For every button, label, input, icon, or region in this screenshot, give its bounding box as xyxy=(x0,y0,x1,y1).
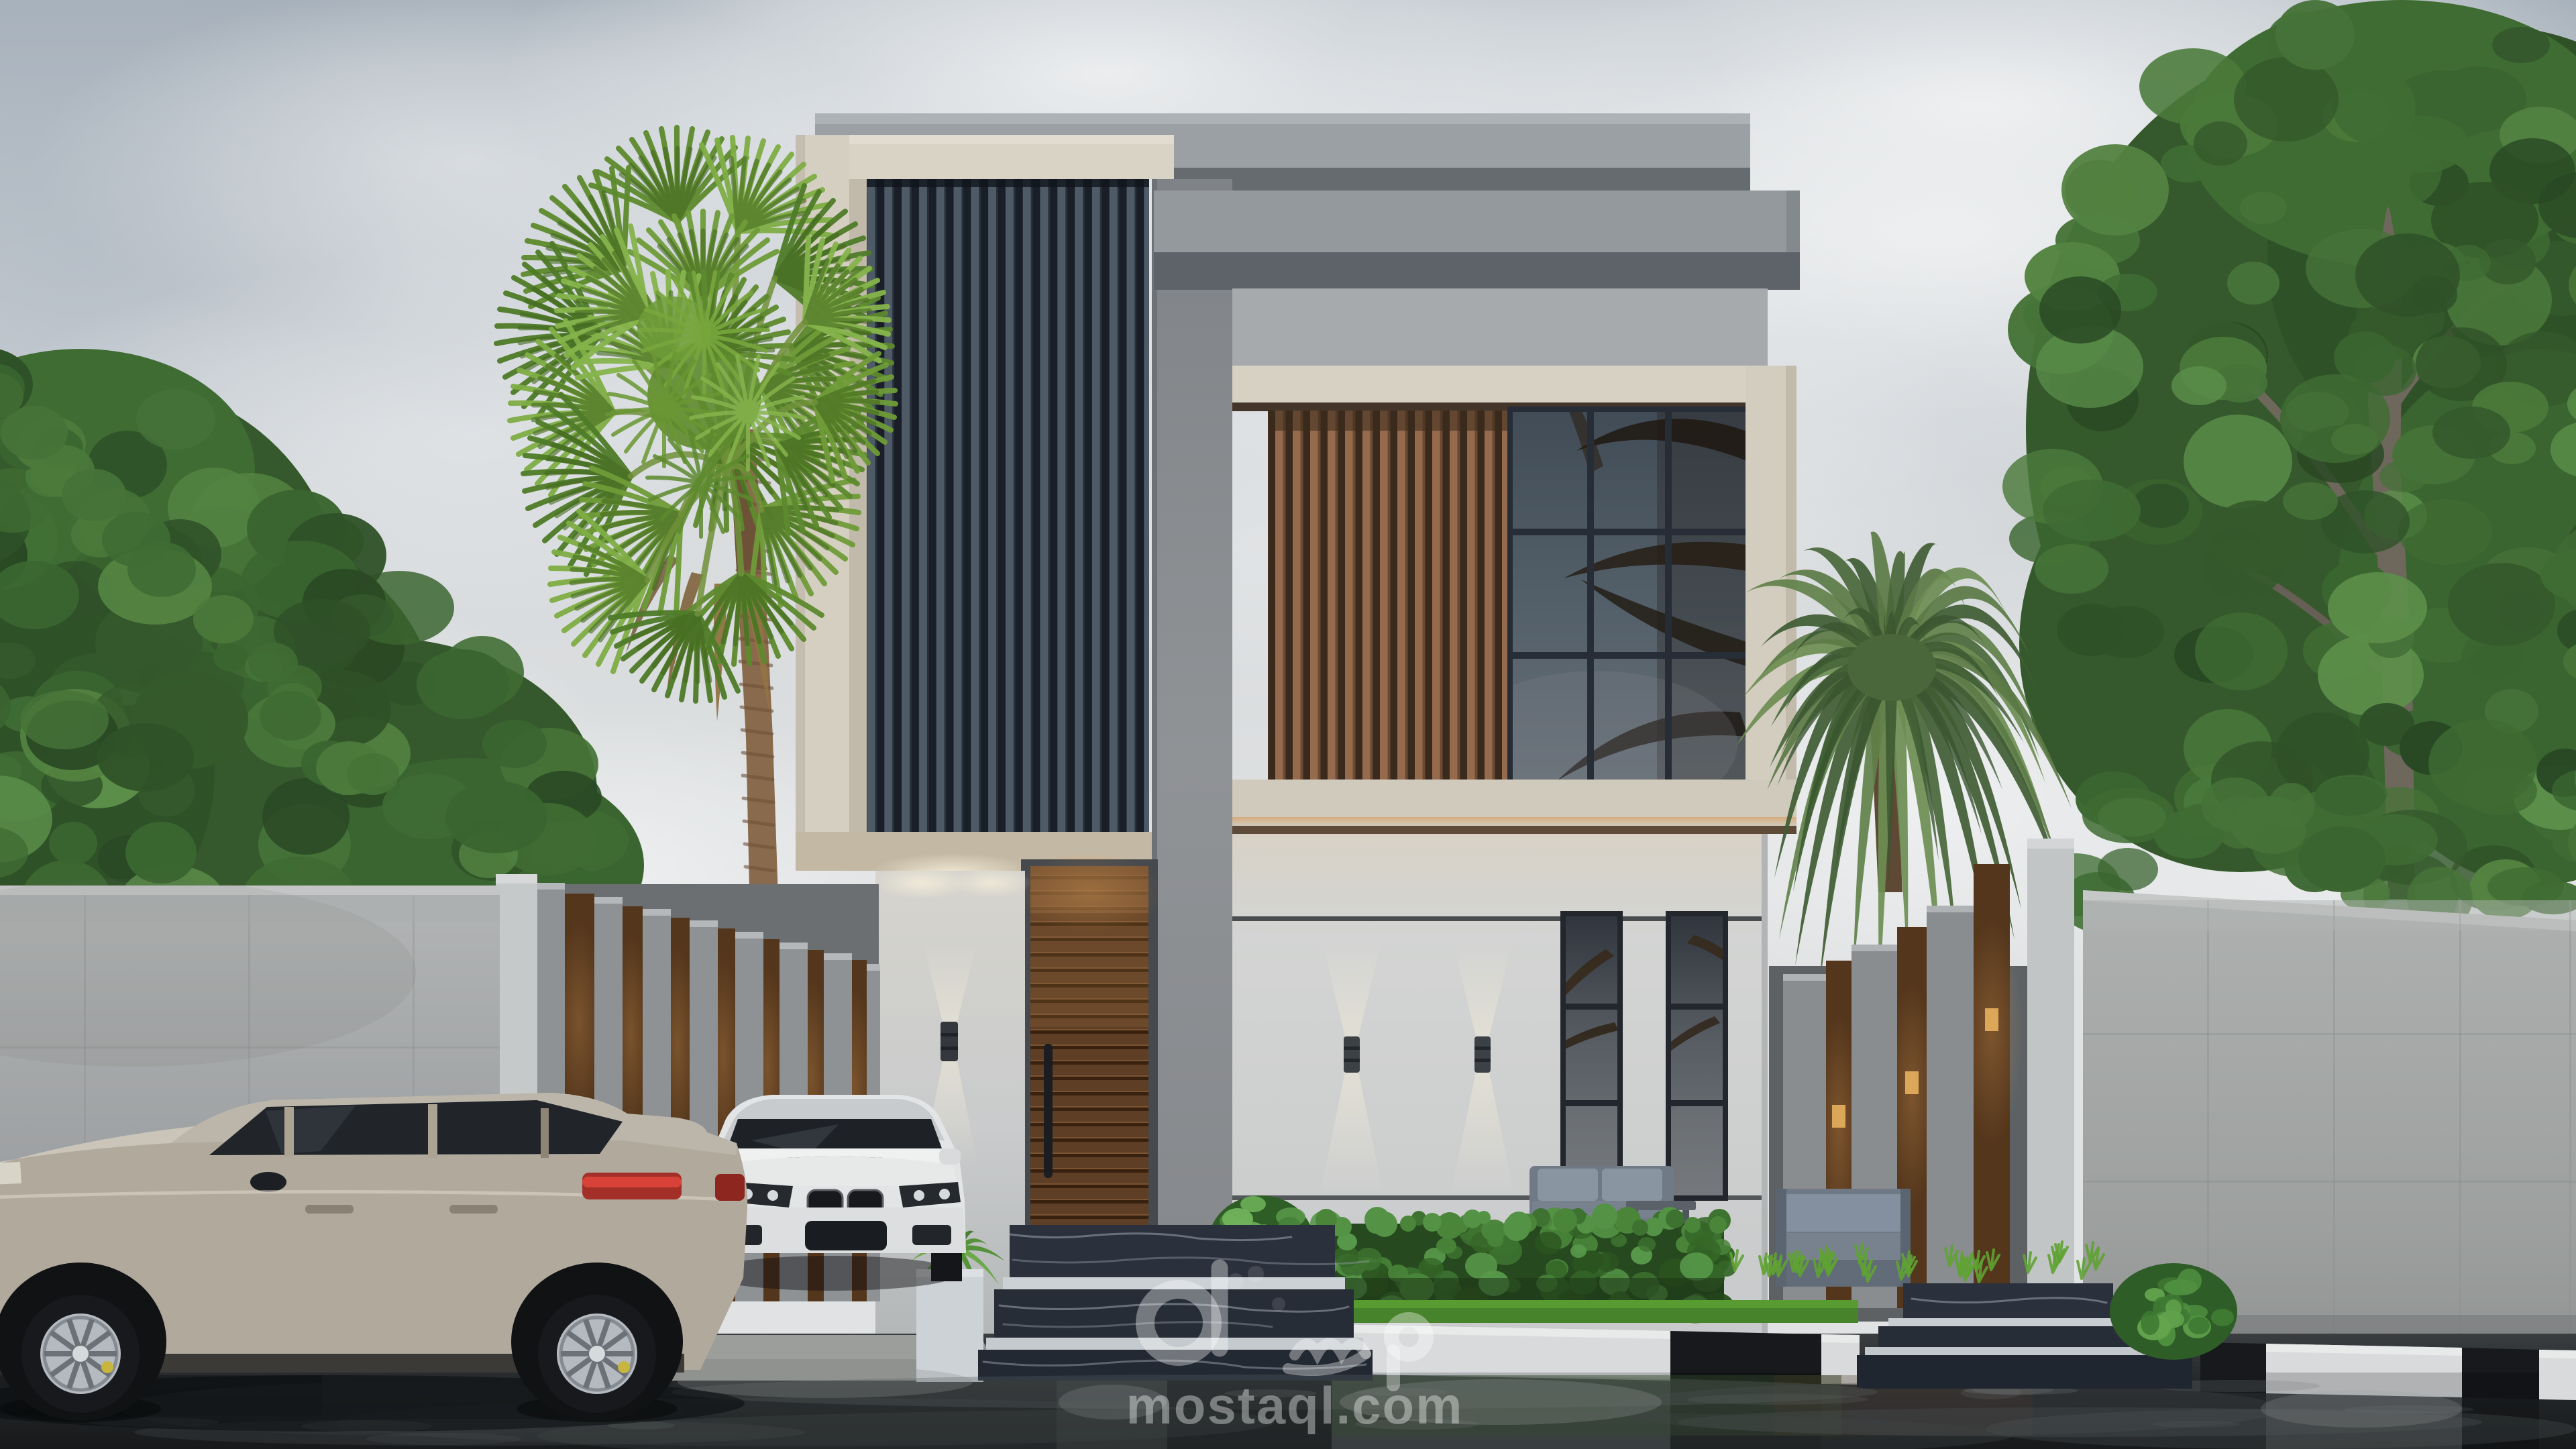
svg-text:mostaql.com: mostaql.com xyxy=(1126,1376,1463,1435)
